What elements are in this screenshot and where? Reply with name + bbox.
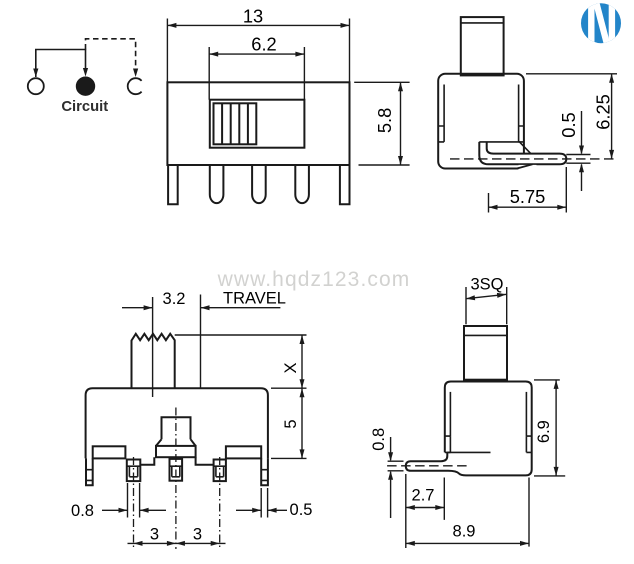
svg-text:0.8: 0.8 (71, 502, 94, 520)
svg-text:8.9: 8.9 (453, 523, 476, 541)
svg-text:0.5: 0.5 (558, 112, 579, 137)
svg-text:6.25: 6.25 (592, 94, 613, 130)
svg-text:2.7: 2.7 (412, 487, 435, 505)
svg-text:6.2: 6.2 (251, 34, 276, 55)
svg-text:TRAVEL: TRAVEL (223, 290, 286, 308)
svg-text:X: X (282, 362, 300, 373)
svg-text:6.9: 6.9 (535, 420, 553, 443)
svg-text:13: 13 (243, 6, 263, 27)
svg-text:3: 3 (150, 526, 159, 544)
svg-text:3SQ: 3SQ (470, 276, 503, 294)
svg-text:3: 3 (193, 526, 202, 544)
svg-text:0.5: 0.5 (290, 501, 313, 519)
svg-text:Circuit: Circuit (61, 99, 108, 115)
svg-text:5: 5 (282, 419, 300, 428)
svg-text:0.8: 0.8 (370, 428, 388, 451)
svg-text:5.8: 5.8 (374, 108, 395, 133)
svg-text:5.75: 5.75 (510, 186, 546, 207)
svg-text:3.2: 3.2 (163, 290, 186, 308)
svg-text:www.hqdz123.com: www.hqdz123.com (217, 268, 411, 291)
